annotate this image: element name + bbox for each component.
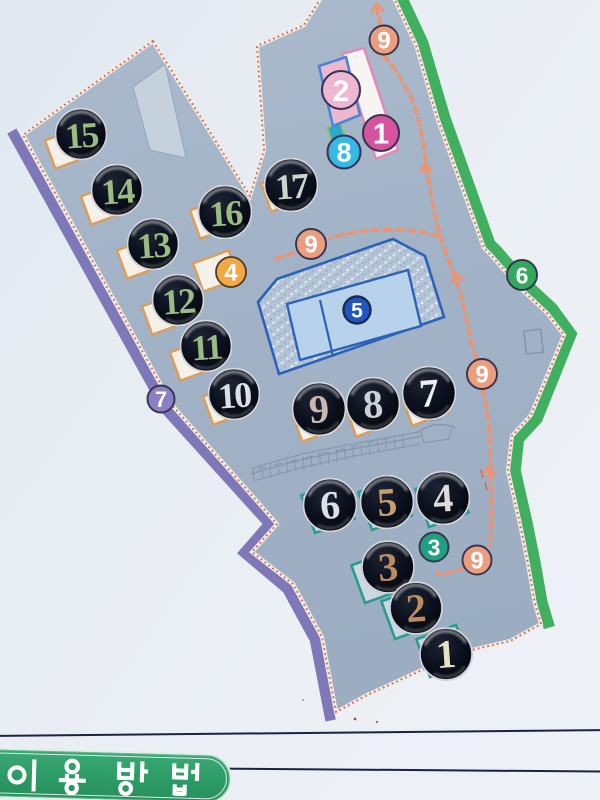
svg-text:11: 11 <box>190 326 224 368</box>
svg-text:16: 16 <box>208 192 244 234</box>
svg-text:9: 9 <box>475 362 488 389</box>
svg-text:12: 12 <box>161 280 197 322</box>
svg-text:8: 8 <box>361 381 384 427</box>
svg-text:7: 7 <box>155 387 167 412</box>
svg-text:4: 4 <box>431 475 454 521</box>
svg-text:3: 3 <box>428 534 441 560</box>
svg-text:10: 10 <box>217 374 253 416</box>
svg-text:15: 15 <box>64 114 100 156</box>
svg-text:14: 14 <box>100 170 137 212</box>
svg-text:5: 5 <box>375 479 398 525</box>
svg-text:1: 1 <box>434 631 457 677</box>
svg-text:4: 4 <box>224 260 238 287</box>
svg-text:5: 5 <box>351 300 363 323</box>
svg-text:6: 6 <box>516 262 529 288</box>
svg-text:17: 17 <box>274 165 311 207</box>
svg-text:9: 9 <box>307 386 330 432</box>
svg-text:2: 2 <box>333 75 350 108</box>
svg-text:13: 13 <box>136 224 172 266</box>
svg-text:9: 9 <box>470 548 483 575</box>
svg-text:7: 7 <box>417 370 440 416</box>
svg-text:1: 1 <box>373 118 389 150</box>
svg-text:3: 3 <box>376 544 399 590</box>
svg-text:9: 9 <box>304 232 317 259</box>
svg-text:6: 6 <box>318 482 341 528</box>
svg-text:8: 8 <box>336 138 351 168</box>
svg-text:9: 9 <box>377 28 390 55</box>
svg-text:2: 2 <box>404 585 427 631</box>
